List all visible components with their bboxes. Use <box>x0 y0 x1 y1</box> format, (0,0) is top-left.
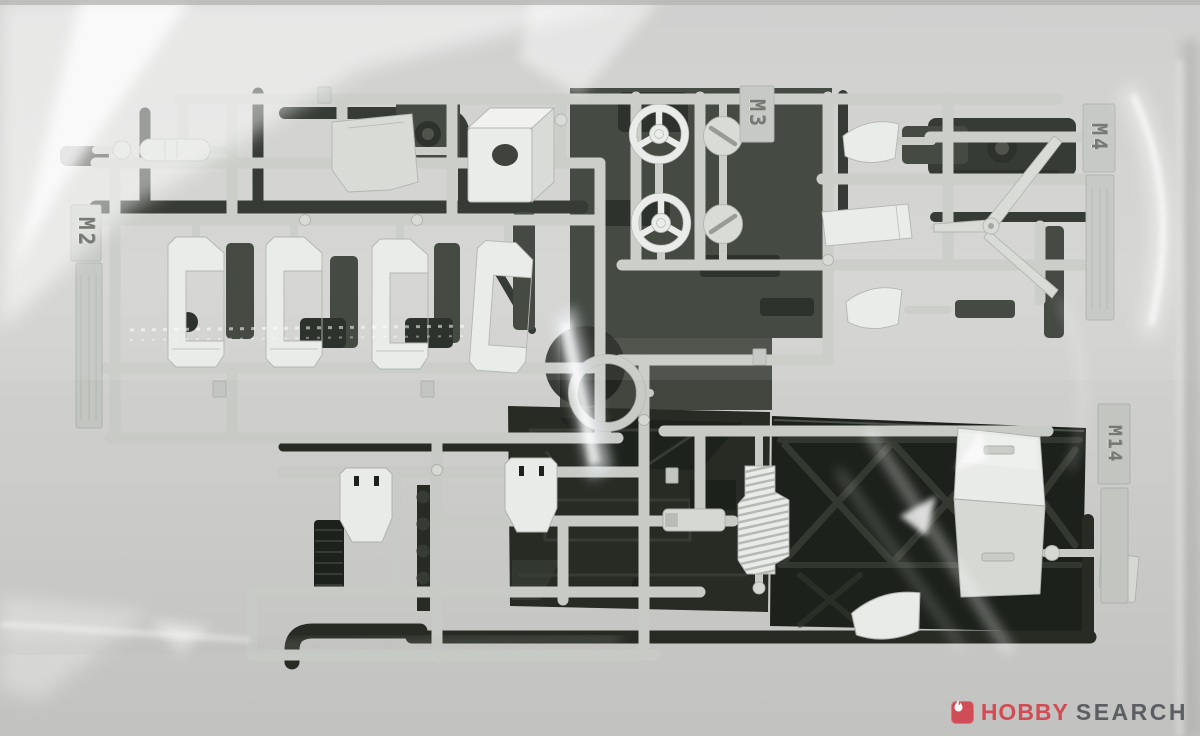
skirt-armor-part <box>505 458 557 532</box>
watermark-brand-red: HOBBY <box>981 699 1069 726</box>
runner-tag-m14: M14 <box>1098 404 1130 484</box>
watermark-brand-gray: SEARCH <box>1076 699 1188 726</box>
skirt-armor-part <box>340 468 392 542</box>
product-photo: M2 M3 M4 M14 HOBBY SEARCH <box>0 0 1200 736</box>
runner-tag-m4: M4 <box>1083 104 1115 172</box>
runner-tag-m2: M2 <box>71 205 101 261</box>
hobbysearch-watermark: HOBBY SEARCH <box>951 699 1188 726</box>
runner-tag-m3: M3 <box>740 86 774 142</box>
hobbysearch-flame-icon <box>951 701 974 724</box>
dark-track-part <box>314 520 344 594</box>
sprue-scene <box>0 0 1200 736</box>
